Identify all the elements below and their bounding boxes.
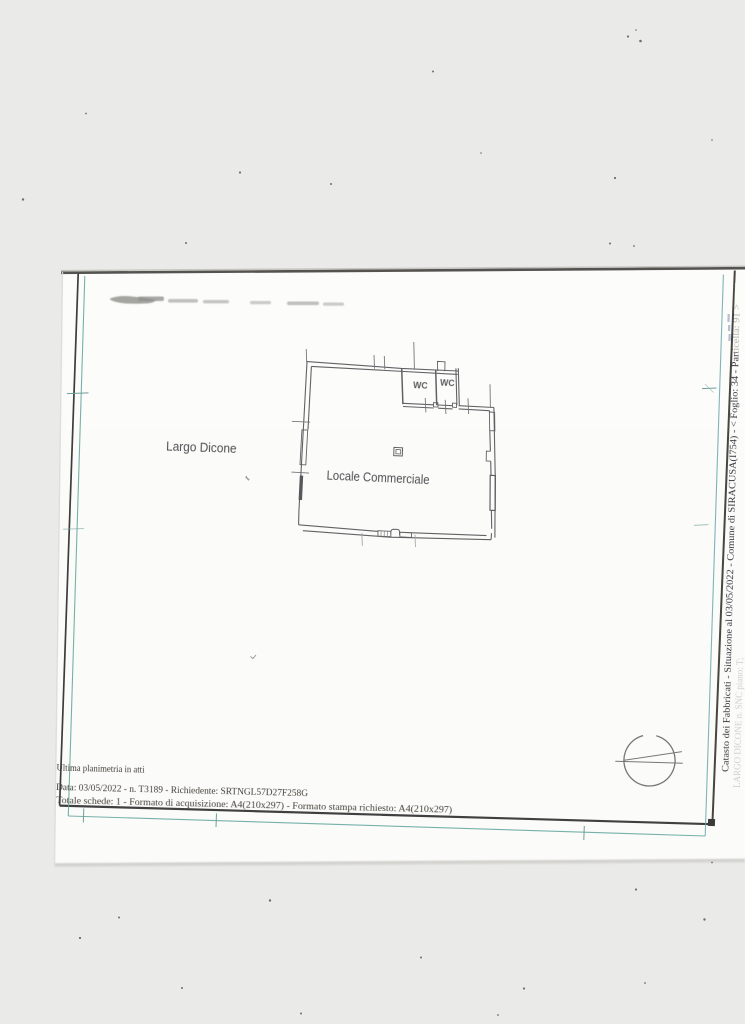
svg-text:WC: WC <box>440 378 455 390</box>
svg-text:Largo Dicone: Largo Dicone <box>166 438 237 455</box>
svg-text:WC: WC <box>413 380 428 392</box>
